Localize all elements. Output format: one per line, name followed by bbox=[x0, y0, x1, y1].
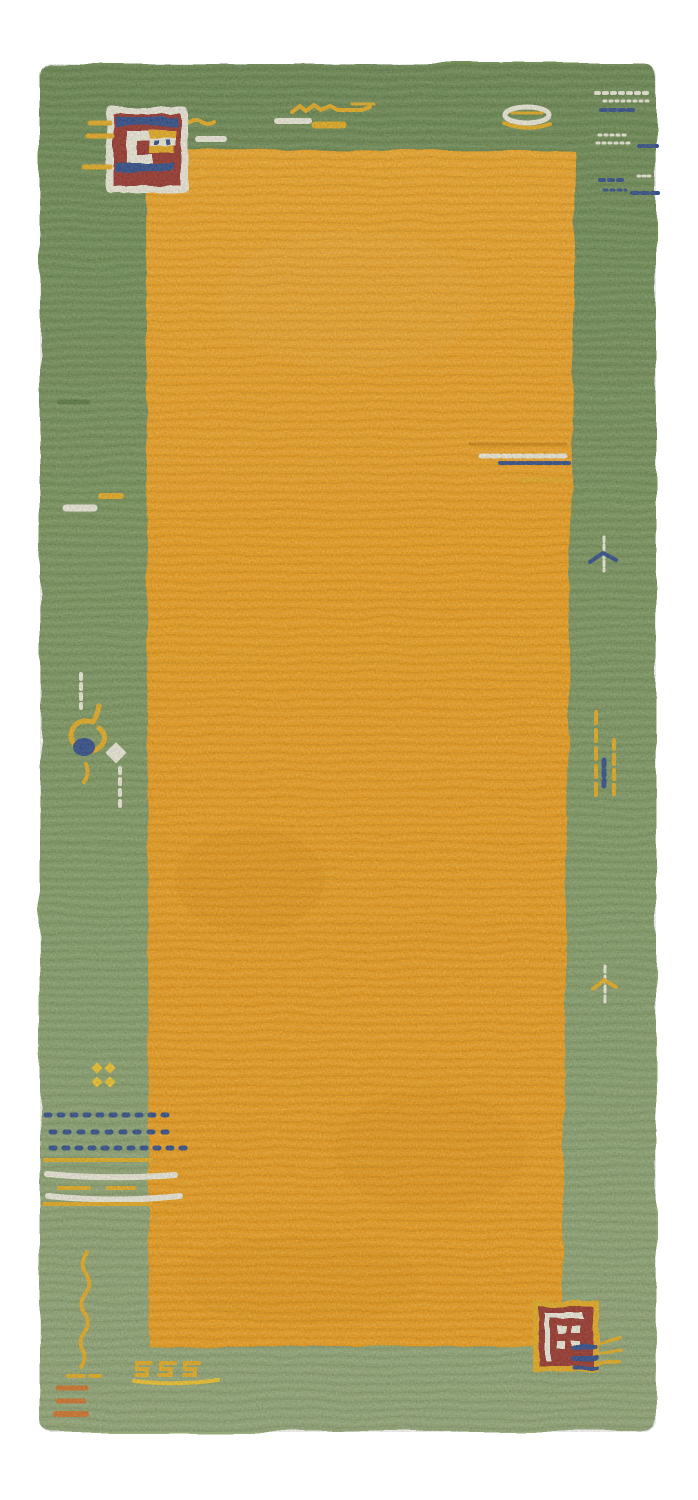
rug-photo bbox=[0, 0, 698, 1500]
texture-grain bbox=[40, 64, 656, 1432]
photo-background bbox=[0, 0, 698, 1500]
